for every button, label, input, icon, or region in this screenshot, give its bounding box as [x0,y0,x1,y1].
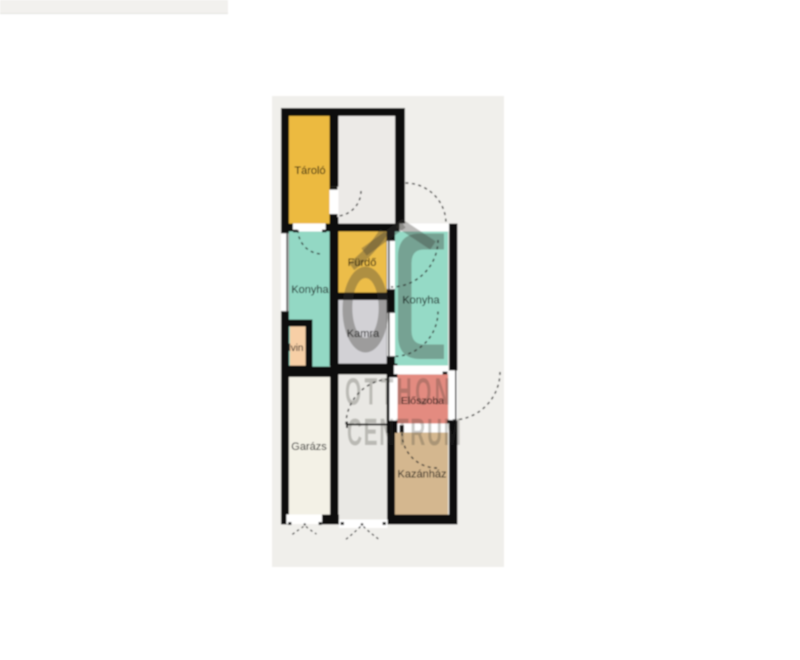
svg-text:lvin: lvin [288,343,303,354]
svg-text:Kazánház: Kazánház [398,469,447,481]
svg-text:Konyha: Konyha [291,284,329,296]
svg-text:Konyha: Konyha [402,295,440,307]
svg-text:CENTRUM: CENTRUM [347,412,463,454]
svg-text:Garázs: Garázs [291,441,327,453]
svg-text:Előszoba: Előszoba [401,395,444,407]
svg-text:Kamra: Kamra [347,328,380,340]
svg-text:Tároló: Tároló [294,165,325,177]
svg-text:Fürdő: Fürdő [348,257,377,269]
